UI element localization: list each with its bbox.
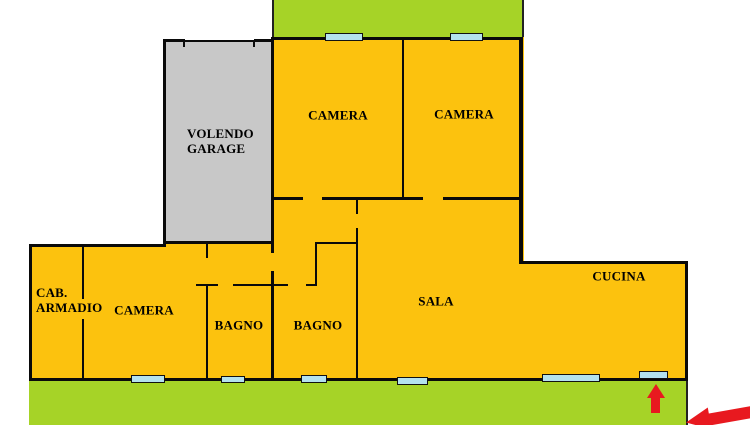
wall bbox=[519, 37, 523, 263]
window-icon bbox=[639, 371, 668, 379]
wall bbox=[163, 39, 166, 242]
window-icon bbox=[542, 374, 600, 382]
wall bbox=[443, 197, 519, 200]
wall bbox=[29, 244, 32, 381]
wall bbox=[253, 42, 255, 47]
wall bbox=[206, 284, 208, 380]
room-label-camera-bottom: CAMERA bbox=[114, 303, 174, 318]
wall bbox=[271, 37, 274, 253]
wall bbox=[82, 319, 84, 380]
garden-strip-bottom bbox=[29, 381, 688, 425]
wall bbox=[356, 228, 358, 380]
wall bbox=[273, 37, 523, 40]
floor-plan: VOLENDO GARAGE CAMERA CAMERA CAB. ARMADI… bbox=[0, 0, 750, 425]
room-label-camera-top-right: CAMERA bbox=[434, 107, 494, 122]
wall bbox=[206, 244, 208, 258]
wall bbox=[519, 261, 688, 264]
wall bbox=[315, 242, 317, 286]
wall bbox=[322, 197, 423, 200]
room-label-bagno-left: BAGNO bbox=[215, 318, 264, 333]
room-label-cucina: CUCINA bbox=[592, 269, 645, 284]
window-icon bbox=[301, 375, 327, 383]
window-icon bbox=[397, 377, 428, 385]
wall bbox=[271, 271, 274, 380]
wall bbox=[315, 242, 358, 244]
corner-arrow-left-icon bbox=[684, 397, 750, 425]
wall bbox=[273, 197, 303, 200]
room-label-cab-armadio: CAB. ARMADIO bbox=[36, 285, 102, 315]
wall bbox=[183, 42, 185, 47]
wall bbox=[402, 37, 404, 199]
room-label-garage: VOLENDO GARAGE bbox=[187, 126, 254, 156]
window-icon bbox=[221, 376, 245, 383]
room-label-camera-top-left: CAMERA bbox=[308, 108, 368, 123]
room-label-bagno-right: BAGNO bbox=[294, 318, 343, 333]
room-label-sala: SALA bbox=[418, 294, 453, 309]
window-icon bbox=[325, 33, 363, 41]
entrance-arrow-up-icon bbox=[647, 384, 665, 398]
wall bbox=[233, 284, 288, 286]
entrance-arrow-up-icon bbox=[651, 397, 660, 413]
corner-arrow-left-icon bbox=[707, 404, 750, 425]
wall bbox=[163, 39, 185, 42]
wall bbox=[29, 244, 166, 247]
wall bbox=[685, 261, 688, 381]
wall bbox=[183, 40, 256, 42]
wall bbox=[356, 197, 358, 214]
window-icon bbox=[131, 375, 165, 383]
wall bbox=[163, 241, 273, 244]
garden-top-left-edge bbox=[272, 0, 274, 38]
garden-strip-top bbox=[273, 0, 524, 38]
garden-top-right-edge bbox=[522, 0, 524, 38]
window-icon bbox=[450, 33, 483, 41]
wall bbox=[306, 284, 315, 286]
